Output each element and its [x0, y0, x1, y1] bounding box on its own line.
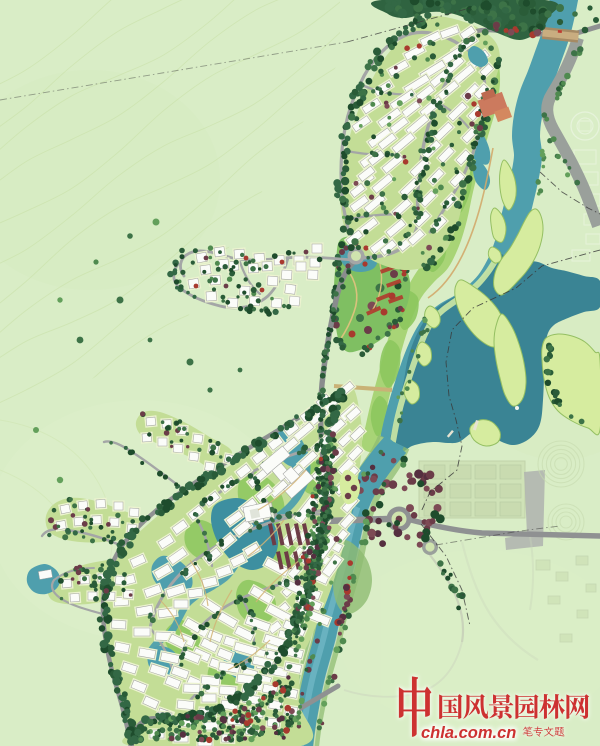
svg-text:chla.com.cn: chla.com.cn	[421, 724, 516, 742]
